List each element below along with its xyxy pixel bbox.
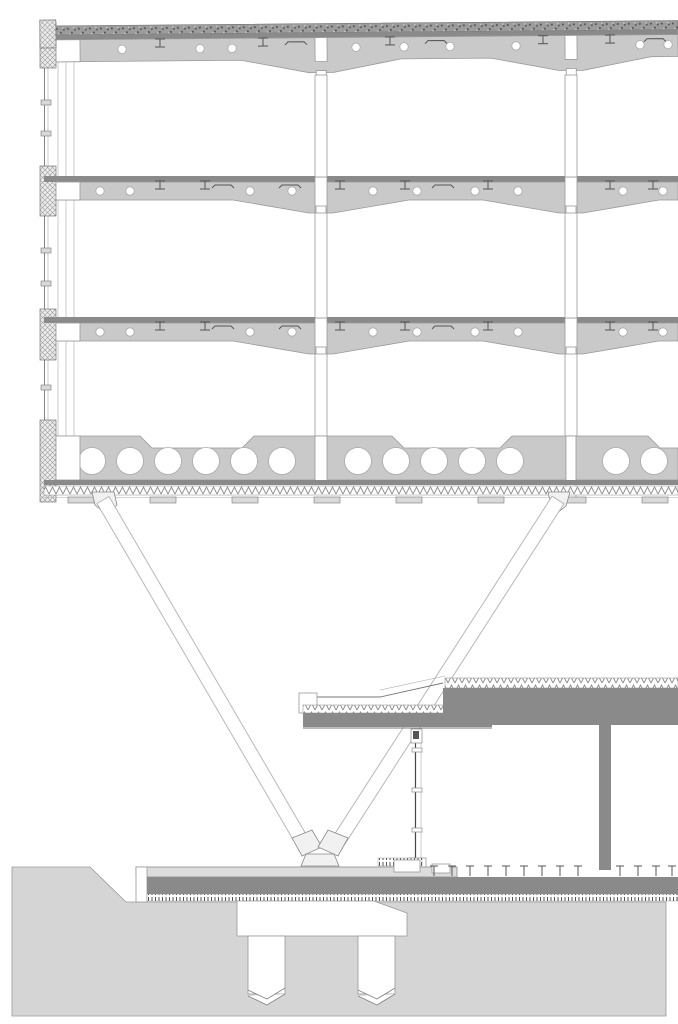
slab-end-block	[56, 436, 80, 480]
web-opening	[118, 45, 126, 53]
web-opening	[288, 328, 296, 336]
web-opening	[400, 43, 408, 51]
web-opening	[619, 187, 627, 195]
column-mid-upper	[315, 75, 327, 177]
web-opening	[619, 328, 627, 336]
web-opening	[246, 328, 254, 336]
facade-fixing-tick	[41, 385, 51, 390]
web-opening	[369, 328, 377, 336]
roof-beam-end-block	[56, 40, 80, 62]
web-opening	[413, 187, 421, 195]
l2-beam-end-block	[56, 182, 80, 200]
soffit-slab-line	[44, 480, 678, 485]
soffit-hanger-box	[314, 497, 340, 503]
canopy-slab	[303, 713, 492, 727]
slab-column-pass	[315, 436, 327, 481]
web-opening	[659, 328, 667, 336]
web-opening	[126, 187, 134, 195]
roof-parapet	[40, 20, 56, 48]
soffit-hanger-box	[478, 497, 504, 503]
web-opening	[352, 43, 360, 51]
web-opening	[471, 187, 479, 195]
web-opening	[413, 328, 421, 336]
web-opening	[196, 44, 204, 52]
section-drawing-canvas	[0, 0, 678, 1024]
canopy-insulation	[303, 705, 452, 713]
soffit-hanger-box	[642, 497, 668, 503]
web-opening	[664, 40, 672, 48]
soffit-hanger-box	[396, 497, 422, 503]
web-opening	[228, 44, 236, 52]
base-node-plate	[301, 854, 339, 866]
ground-slab-shear-keys	[147, 894, 678, 901]
web-opening	[269, 448, 296, 475]
pile-right	[358, 936, 395, 994]
column-mid-lower	[315, 354, 327, 436]
l3-beam-end-block	[56, 323, 80, 341]
floor-edge-detail-box	[432, 864, 450, 873]
web-opening	[345, 448, 372, 475]
bottom-transfer-slab	[44, 436, 678, 503]
web-opening	[421, 448, 448, 475]
web-opening	[471, 328, 479, 336]
l2-floor-slab	[44, 176, 678, 182]
web-opening	[126, 328, 134, 336]
web-opening	[603, 448, 630, 475]
architectural-section-page	[0, 0, 678, 1024]
soffit-hanger-box	[68, 497, 94, 503]
glazing-head-gasket	[413, 731, 419, 739]
web-opening	[636, 41, 644, 49]
web-opening	[96, 328, 104, 336]
soffit-hanger-box	[150, 497, 176, 503]
plaza-edge-upstand	[136, 867, 147, 902]
facade-fixing-tick	[41, 100, 51, 105]
column-right-middle	[565, 213, 577, 318]
podium-roof-insulation	[445, 678, 678, 688]
threshold-detail-box	[394, 860, 420, 872]
facade-spandrel-panel	[40, 309, 56, 360]
roof-column-pass	[565, 35, 577, 59]
web-opening	[459, 448, 486, 475]
web-opening	[369, 187, 377, 195]
roof-column-pass	[315, 38, 327, 62]
web-opening	[193, 448, 220, 475]
web-opening	[514, 187, 522, 195]
l3-floor-slab	[44, 317, 678, 323]
glazing-transom	[412, 788, 422, 792]
facade-fixing-tick	[41, 248, 51, 253]
web-opening	[246, 187, 254, 195]
web-opening	[117, 448, 144, 475]
facade-fixing-tick	[41, 281, 51, 286]
podium-internal-wall	[599, 723, 611, 870]
web-opening	[659, 187, 667, 195]
glazing-transom	[412, 828, 422, 832]
column-right-upper	[565, 75, 577, 177]
pile-cap	[237, 901, 407, 936]
soffit-insulation	[44, 486, 678, 495]
column-mid-middle	[315, 213, 327, 318]
pile-left	[248, 936, 285, 994]
web-opening	[288, 187, 296, 195]
column-right-lower	[565, 354, 577, 436]
facade-spandrel-panel	[40, 166, 56, 216]
web-opening	[514, 328, 522, 336]
web-opening	[497, 448, 524, 475]
web-opening	[96, 187, 104, 195]
web-opening	[155, 448, 182, 475]
web-opening	[383, 448, 410, 475]
facade-fixing-tick	[41, 131, 51, 136]
web-opening	[641, 448, 668, 475]
web-opening	[231, 448, 258, 475]
web-opening	[446, 42, 454, 50]
web-opening	[512, 42, 520, 50]
ground-floor-slab	[147, 877, 678, 894]
web-opening	[79, 448, 106, 475]
glazing-transom	[412, 748, 422, 752]
soffit-hanger-box	[232, 497, 258, 503]
